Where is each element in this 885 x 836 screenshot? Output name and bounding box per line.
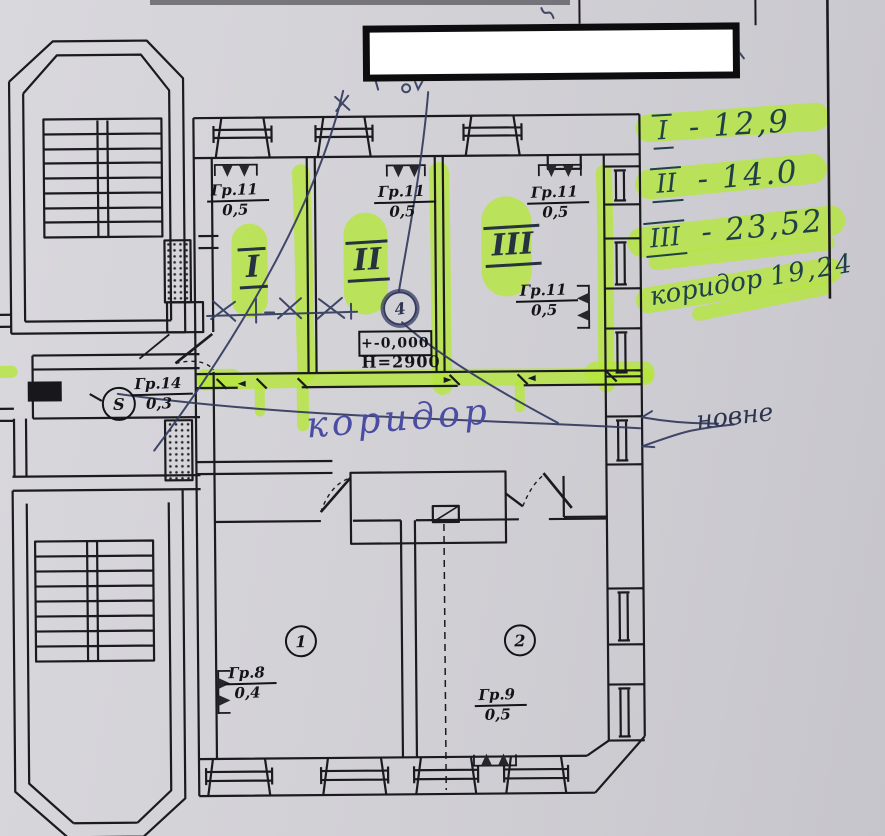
room-mark-III: III xyxy=(483,224,541,268)
room-mark-I: I xyxy=(237,247,267,289)
room-mark-II: II xyxy=(345,239,389,282)
room1-number: 1 xyxy=(285,625,317,657)
redaction-box xyxy=(363,22,740,81)
filled-wall-mark xyxy=(28,381,62,401)
floor-plan-scene: Гр.11 0,5 Гр.11 0,5 Гр.11 0,5 Гр.11 0,5 … xyxy=(0,0,885,836)
label-gr14: Гр.14 0,3 xyxy=(130,376,193,413)
room2-number: 2 xyxy=(504,624,536,656)
label-gr11-room2: Гр.11 0,5 xyxy=(374,184,437,221)
ceiling-height: Н=2900 xyxy=(361,352,440,372)
label-gr9: Гр.9 0,5 xyxy=(474,687,526,724)
label-gr11-room3-top: Гр.11 0,5 xyxy=(527,184,590,221)
scanned-floor-plan-photo: Гр.11 0,5 Гр.11 0,5 Гр.11 0,5 Гр.11 0,5 … xyxy=(0,0,885,836)
label-gr11-room3-side: Гр.11 0,5 xyxy=(516,282,579,319)
sensor-s-mark: S xyxy=(102,387,136,421)
label-gr11-room1: Гр.11 0,5 xyxy=(207,182,270,219)
label-gr8: Гр.8 0,4 xyxy=(224,665,276,702)
